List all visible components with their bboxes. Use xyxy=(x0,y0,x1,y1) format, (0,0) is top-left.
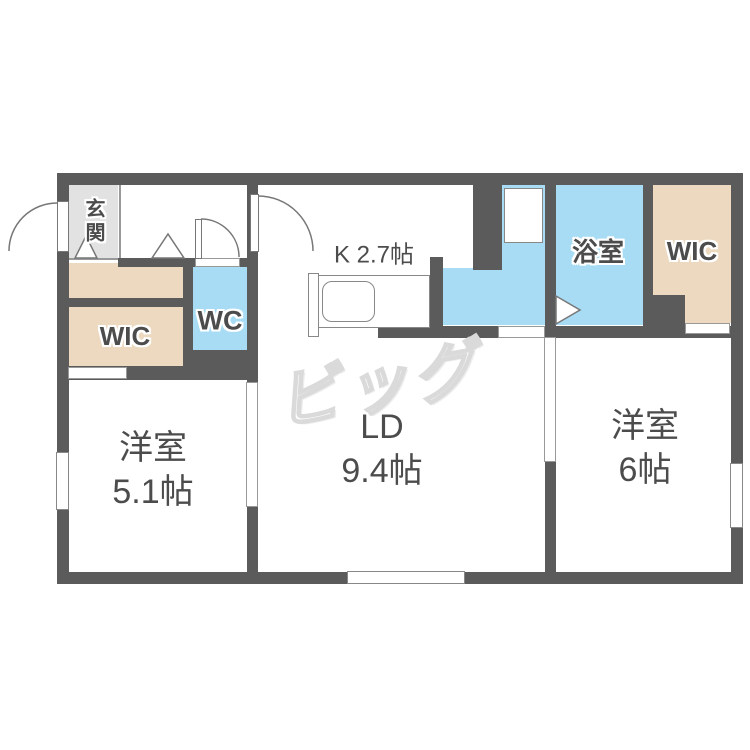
window-bottom xyxy=(347,571,465,584)
room-label-living-dining: LD 9.4帖 xyxy=(341,405,422,493)
room-size: 9.4帖 xyxy=(341,452,422,490)
room-label-bedroom-right: 洋室 6帖 xyxy=(611,404,679,492)
room-name: 洋室 xyxy=(611,407,679,445)
room-label-genkan: 玄関 xyxy=(80,198,106,246)
opening-wic-right-door xyxy=(685,323,730,334)
floorplan-canvas: ビッグ 玄関 WIC WC K 2.7帖 浴室 WIC 洋室 5.1帖 LD 9… xyxy=(0,0,750,750)
wic-right-fill-lower xyxy=(685,295,731,323)
room-size: 5.1帖 xyxy=(112,473,193,511)
kitchen-counter-side xyxy=(308,273,319,337)
window-right xyxy=(730,463,743,528)
room-name: 洋室 xyxy=(119,429,187,467)
room-label-bathroom: 浴室 xyxy=(572,236,624,270)
room-label-wic-left: WIC xyxy=(100,320,151,354)
wall-closet-wic xyxy=(68,298,183,307)
wall-pipe-space xyxy=(473,185,502,270)
entrance-door-leaf xyxy=(57,201,69,252)
washing-machine-pan xyxy=(504,188,543,243)
room-label-bedroom-left: 洋室 5.1帖 xyxy=(112,426,193,514)
window-left xyxy=(56,452,69,510)
hall-ld-door-leaf xyxy=(250,194,259,252)
wall-wc-south xyxy=(193,350,247,366)
hall-ld-door-swing-arc xyxy=(258,196,313,251)
wc-door-swing-arc xyxy=(201,219,239,257)
room-label-wc: WC xyxy=(198,303,243,338)
wall-top xyxy=(57,173,743,185)
wall-bath-wic xyxy=(643,185,653,295)
opening-washroom-door xyxy=(498,326,545,338)
sliding-door-bedroom-left xyxy=(246,382,258,507)
room-label-wic-right: WIC xyxy=(667,235,718,269)
wc-door-leaf xyxy=(195,219,202,259)
room-name: LD xyxy=(360,408,403,446)
room-size: 6帖 xyxy=(619,451,672,489)
kitchen-sink xyxy=(322,281,375,322)
opening-wic-left-door xyxy=(68,367,127,379)
room-label-kitchen: K 2.7帖 xyxy=(334,239,414,270)
entry-step-line xyxy=(119,185,121,259)
wall-wic-wc xyxy=(183,258,193,380)
entry-bottom-line xyxy=(68,258,118,260)
closet-strip-fill xyxy=(68,263,183,298)
closet-folding-door-marker xyxy=(152,234,184,258)
entrance-door-swing-arc xyxy=(9,203,57,251)
opening-wc-door xyxy=(195,258,240,267)
sliding-door-bedroom-right xyxy=(544,337,556,462)
